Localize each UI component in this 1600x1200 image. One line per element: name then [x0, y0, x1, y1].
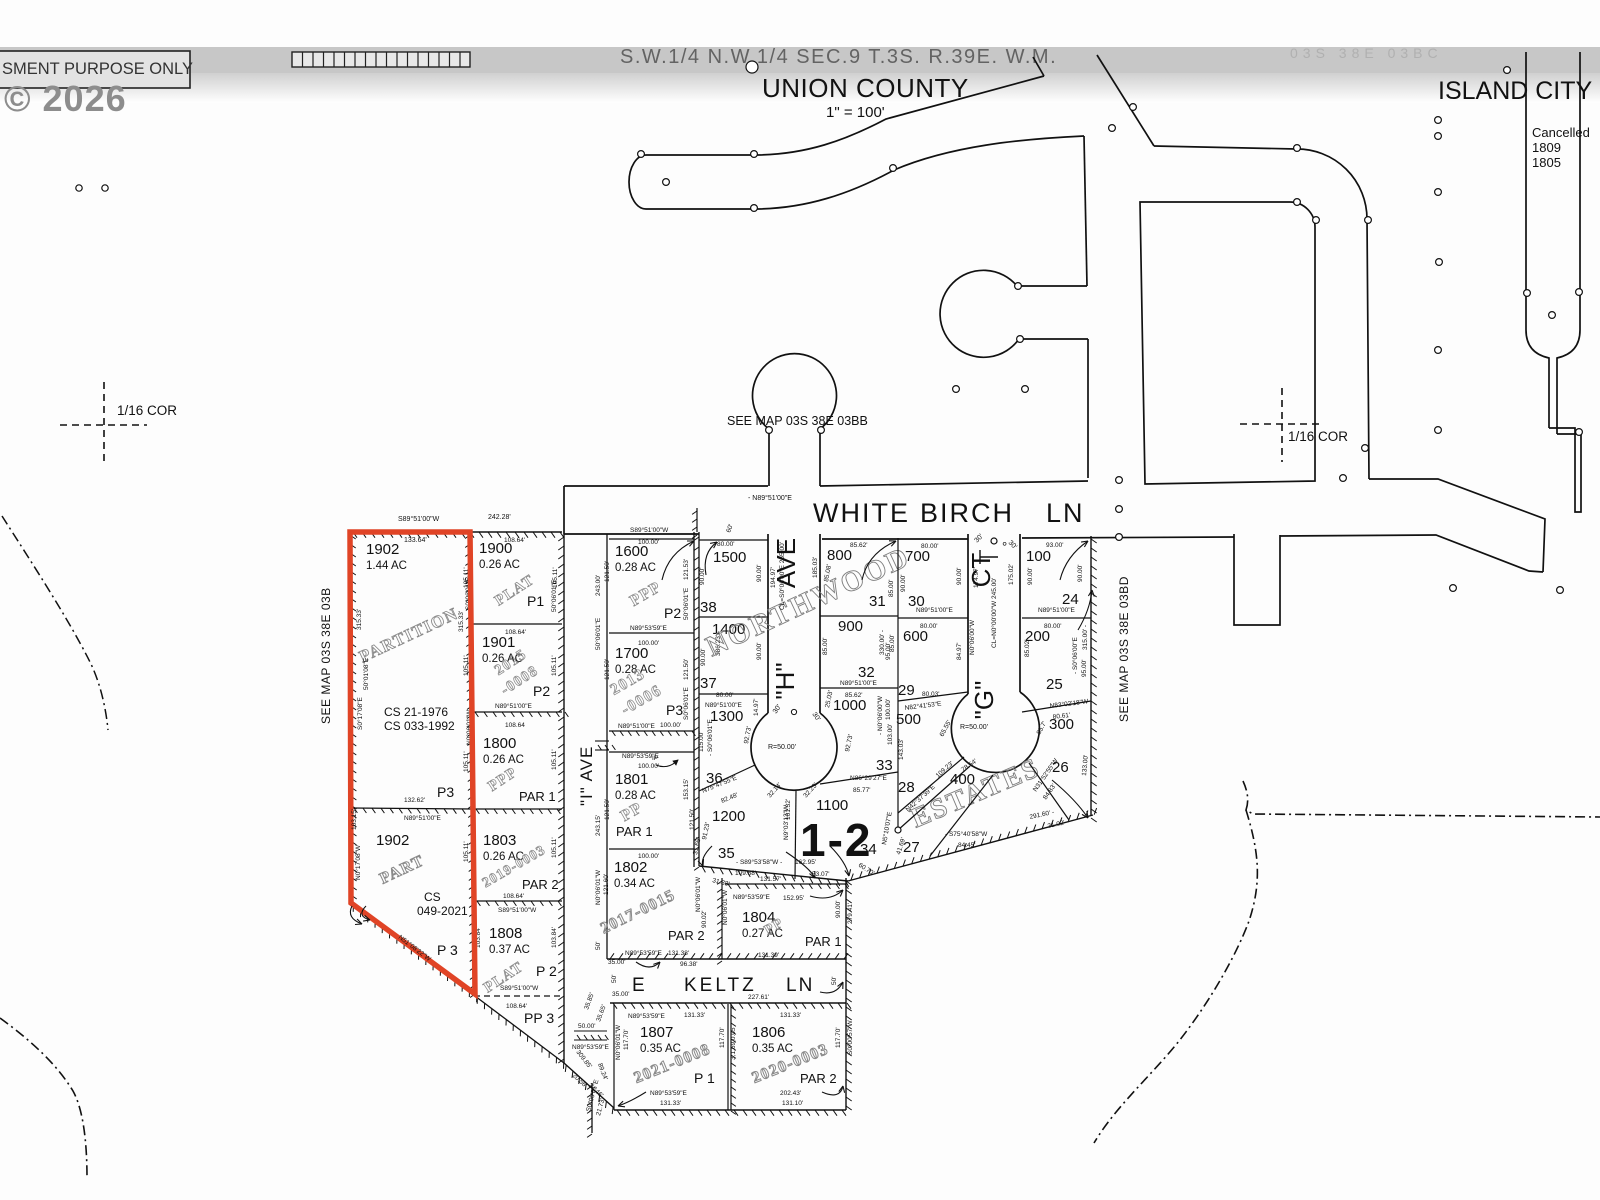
svg-text:34: 34	[860, 841, 877, 858]
svg-text:LN: LN	[786, 975, 814, 996]
svg-text:85.00': 85.00'	[888, 579, 895, 597]
svg-text:- N0°06'00"W: - N0°06'00"W	[876, 695, 884, 735]
svg-text:50': 50'	[611, 975, 618, 983]
svg-text:90.00': 90.00'	[900, 574, 907, 592]
svg-text:175.02': 175.02'	[1008, 564, 1015, 585]
svg-text:90.00': 90.00'	[756, 642, 763, 660]
svg-text:108.64: 108.64	[505, 722, 525, 729]
svg-text:243.00': 243.00'	[595, 575, 602, 596]
svg-text:- N89°51'00"E: - N89°51'00"E	[748, 494, 792, 502]
svg-text:N0°06'00"W: N0°06'00"W	[968, 619, 976, 655]
svg-text:N86°29'27"E: N86°29'27"E	[850, 774, 888, 782]
svg-text:P2: P2	[664, 605, 681, 621]
svg-text:- S0°06'01"E: - S0°06'01"E	[706, 718, 714, 756]
svg-text:CS 21-1976: CS 21-1976	[384, 705, 448, 719]
svg-text:PAR 1: PAR 1	[519, 789, 556, 804]
svg-text:ISLAND CITY: ISLAND CITY	[1438, 77, 1593, 105]
svg-text:35.00': 35.00'	[608, 959, 626, 966]
svg-text:103.00': 103.00'	[887, 724, 894, 745]
svg-text:N0°06'01"W: N0°06'01"W	[721, 889, 729, 925]
svg-text:N89°51'00"E: N89°51'00"E	[916, 606, 954, 614]
svg-text:100.00': 100.00'	[638, 763, 659, 770]
svg-text:P3: P3	[666, 702, 683, 718]
svg-text:CS: CS	[424, 890, 441, 904]
svg-text:33: 33	[876, 757, 893, 774]
svg-text:108.64': 108.64'	[506, 1003, 527, 1010]
svg-text:0.26 AC: 0.26 AC	[483, 754, 524, 766]
svg-text:279.41': 279.41'	[847, 903, 854, 924]
svg-text:27: 27	[903, 839, 920, 856]
svg-text:UNION COUNTY: UNION COUNTY	[762, 73, 969, 103]
svg-text:SEE MAP 03S 38E 03BB: SEE MAP 03S 38E 03BB	[727, 414, 868, 428]
svg-text:121.60': 121.60'	[603, 874, 610, 895]
svg-text:P 2: P 2	[536, 963, 557, 979]
svg-text:N89°53'59"E: N89°53'59"E	[630, 624, 668, 632]
svg-text:1500: 1500	[713, 549, 746, 566]
svg-text:R=50.00': R=50.00'	[960, 724, 988, 731]
svg-text:N89°53'59"E: N89°53'59"E	[650, 1089, 688, 1097]
svg-text:31: 31	[869, 593, 886, 610]
svg-text:1902: 1902	[376, 832, 409, 849]
svg-text:315.33': 315.33'	[458, 611, 465, 632]
svg-text:- S89°53'58"W -: - S89°53'58"W -	[736, 858, 782, 866]
svg-text:84.45': 84.45'	[958, 842, 976, 849]
svg-text:202.43': 202.43'	[780, 1090, 801, 1097]
svg-text:100: 100	[1026, 548, 1051, 565]
svg-text:50°06'01"E: 50°06'01"E	[550, 579, 558, 612]
svg-text:80.00': 80.00'	[717, 541, 735, 548]
svg-text:N89°51'00"E: N89°51'00"E	[840, 679, 878, 687]
svg-text:37: 37	[700, 675, 717, 692]
svg-text:P2: P2	[533, 683, 550, 699]
svg-text:90.00': 90.00'	[700, 648, 707, 666]
svg-text:95.00': 95.00'	[1081, 659, 1088, 677]
svg-text:BIRCH: BIRCH	[920, 498, 1014, 528]
svg-text:143.03': 143.03'	[898, 739, 905, 760]
svg-text:CS 033-1992: CS 033-1992	[384, 719, 455, 733]
svg-text:1/16 COR: 1/16 COR	[1288, 429, 1348, 444]
svg-text:121.50': 121.50'	[604, 799, 611, 820]
svg-text:PP 3: PP 3	[524, 1010, 554, 1026]
svg-text:28: 28	[898, 779, 915, 796]
svg-text:P1: P1	[527, 593, 544, 609]
svg-text:50°01'08"E: 50°01'08"E	[362, 657, 370, 690]
svg-text:"H": "H"	[770, 662, 800, 699]
svg-text:14.97': 14.97'	[753, 698, 760, 716]
svg-text:1200: 1200	[712, 808, 745, 825]
svg-text:121.50': 121.50'	[683, 659, 690, 680]
svg-text:© 2026: © 2026	[4, 78, 127, 119]
svg-text:25: 25	[1046, 676, 1063, 693]
svg-text:243.15': 243.15'	[595, 815, 602, 836]
svg-text:131.10': 131.10'	[782, 1100, 803, 1107]
svg-text:105.11': 105.11'	[463, 751, 470, 772]
svg-text:1809: 1809	[1532, 140, 1561, 155]
svg-text:131.33': 131.33'	[660, 1100, 681, 1107]
svg-text:500: 500	[896, 711, 921, 728]
svg-text:SEE MAP 03S 38E 03B: SEE MAP 03S 38E 03B	[319, 587, 333, 724]
svg-text:85.00': 85.00'	[822, 637, 829, 655]
svg-text:121.50': 121.50'	[604, 659, 611, 680]
svg-text:N89°51'00"E: N89°51'00"E	[1038, 606, 1076, 614]
svg-text:R=50.00': R=50.00'	[768, 744, 796, 751]
svg-text:90.00': 90.00'	[956, 567, 963, 585]
svg-text:50°06'01"E: 50°06'01"E	[682, 587, 690, 620]
svg-text:315.00' -: 315.00' -	[1082, 625, 1089, 650]
svg-text:105.11': 105.11'	[551, 655, 558, 676]
svg-text:105.11': 105.11'	[551, 749, 558, 770]
svg-text:S89°51'00"W: S89°51'00"W	[630, 526, 669, 534]
svg-text:0.37 AC: 0.37 AC	[489, 944, 530, 956]
svg-text:S.W.1/4 N.W.1/4 SEC.9 T.3S. R.: S.W.1/4 N.W.1/4 SEC.9 T.3S. R.39E. W.M.	[620, 46, 1057, 68]
svg-text:- S0°06'00"E: - S0°06'00"E	[1071, 636, 1079, 674]
svg-text:152.95': 152.95'	[783, 895, 804, 902]
svg-text:S89°51'00"W: S89°51'00"W	[498, 906, 537, 914]
svg-text:SEE MAP 03S 38E 03BD: SEE MAP 03S 38E 03BD	[1117, 576, 1131, 722]
svg-text:90.00': 90.00'	[1027, 567, 1034, 585]
svg-text:96.38': 96.38'	[680, 961, 698, 968]
svg-text:50°06'01"E: 50°06'01"E	[594, 617, 602, 650]
svg-text:108.64': 108.64'	[503, 893, 524, 900]
svg-text:"G": "G"	[969, 681, 999, 720]
svg-text:1" = 100': 1" = 100'	[826, 104, 885, 121]
svg-text:PAR 1: PAR 1	[616, 824, 653, 839]
svg-text:N0°06'01"W: N0°06'01"W	[594, 869, 602, 905]
svg-text:N89°51'00"E: N89°51'00"E	[404, 814, 442, 822]
svg-text:03S 38E 03BC: 03S 38E 03BC	[1290, 45, 1443, 61]
svg-text:108.64': 108.64'	[504, 537, 525, 544]
svg-text:1801: 1801	[615, 771, 648, 788]
svg-text:N0°17'08"W: N0°17'08"W	[354, 844, 362, 880]
svg-text:1802: 1802	[614, 859, 647, 876]
svg-text:1807: 1807	[640, 1024, 673, 1041]
svg-text:N89°53'59"E: N89°53'59"E	[628, 1012, 666, 1020]
svg-text:90.00': 90.00'	[756, 564, 763, 582]
svg-text:131.33': 131.33'	[780, 1012, 801, 1019]
svg-text:131.39': 131.39'	[758, 952, 779, 959]
svg-text:121.50': 121.50'	[689, 809, 696, 830]
svg-text:- S75°40'58"W: - S75°40'58"W	[945, 830, 988, 838]
svg-text:121.53': 121.53'	[683, 559, 690, 580]
svg-text:100.00': 100.00'	[885, 699, 892, 720]
svg-text:1.44 AC: 1.44 AC	[366, 560, 407, 572]
svg-text:85.62': 85.62'	[850, 542, 868, 549]
svg-text:1808: 1808	[489, 925, 522, 942]
svg-text:P 1: P 1	[694, 1070, 715, 1086]
svg-text:133.64': 133.64'	[404, 537, 427, 544]
svg-text:KELTZ: KELTZ	[684, 975, 757, 996]
svg-text:132.62': 132.62'	[404, 797, 425, 804]
svg-text:PAR 2: PAR 2	[668, 928, 705, 943]
svg-text:84.97': 84.97'	[956, 642, 963, 660]
svg-text:1300: 1300	[710, 708, 743, 725]
svg-text:1902: 1902	[366, 541, 399, 558]
svg-text:3,1,69,0.05: 3,1,69,0.05	[730, 1027, 737, 1060]
svg-text:1/16 COR: 1/16 COR	[117, 403, 177, 418]
svg-text:1805: 1805	[1532, 155, 1561, 170]
svg-text:300: 300	[1049, 716, 1074, 733]
svg-text:131.33': 131.33'	[684, 1012, 705, 1019]
svg-text:S89°51'00"W: S89°51'00"W	[500, 984, 539, 992]
svg-text:85.77': 85.77'	[853, 787, 871, 794]
svg-text:117.70': 117.70'	[835, 1027, 842, 1048]
svg-text:32: 32	[858, 664, 875, 681]
svg-text:95.00': 95.00'	[885, 642, 892, 660]
svg-text:153.15': 153.15'	[683, 779, 690, 800]
svg-text:S0°06'01"E: S0°06'01"E	[682, 686, 690, 720]
svg-text:50': 50'	[595, 942, 602, 950]
svg-text:800: 800	[827, 547, 852, 564]
svg-text:0.35 AC: 0.35 AC	[752, 1043, 793, 1055]
svg-text:38: 38	[700, 599, 717, 616]
svg-text:90.02': 90.02'	[701, 910, 708, 928]
svg-text:0.28 AC: 0.28 AC	[615, 562, 656, 574]
svg-text:1100: 1100	[816, 797, 848, 814]
svg-text:700: 700	[905, 548, 930, 565]
svg-text:N89°53'59"E: N89°53'59"E	[622, 752, 660, 760]
svg-text:P3: P3	[437, 784, 454, 800]
svg-text:227.61': 227.61'	[748, 994, 769, 1001]
svg-text:N9°03'13"W: N9°03'13"W	[782, 804, 790, 840]
svg-text:117.70': 117.70'	[623, 1029, 630, 1050]
svg-text:103.15': 103.15'	[351, 809, 358, 830]
svg-text:105.11': 105.11'	[551, 837, 558, 858]
svg-text:600: 600	[903, 628, 928, 645]
svg-text:PAR 1: PAR 1	[805, 934, 842, 949]
svg-text:1803: 1803	[483, 832, 516, 849]
svg-text:N0°06'01"W: N0°06'01"W	[614, 1024, 622, 1060]
svg-text:0.34 AC: 0.34 AC	[614, 878, 655, 890]
svg-text:121.50': 121.50'	[604, 561, 611, 582]
svg-text:103.84': 103.84'	[551, 927, 558, 948]
svg-text:90.00': 90.00'	[835, 900, 842, 918]
svg-text:PAR 2: PAR 2	[522, 877, 559, 892]
svg-text:N89°51'00"E: N89°51'00"E	[495, 702, 533, 710]
svg-text:50.00': 50.00'	[578, 1023, 596, 1030]
svg-text:242.28': 242.28'	[488, 514, 511, 521]
svg-text:108.64': 108.64'	[505, 629, 526, 636]
svg-text:131.57': 131.57'	[760, 876, 781, 883]
svg-text:24: 24	[1062, 591, 1079, 608]
svg-text:S0°17'08"E: S0°17'08"E	[356, 696, 364, 730]
svg-text:1800: 1800	[483, 735, 516, 752]
svg-text:WHITE: WHITE	[813, 498, 910, 528]
svg-text:049-2021: 049-2021	[417, 904, 468, 918]
svg-text:E: E	[632, 975, 646, 996]
svg-text:N89°51'00"E: N89°51'00"E	[618, 722, 656, 730]
svg-text:CL=N0°00'00"W 245.00': CL=N0°00'00"W 245.00'	[990, 578, 998, 648]
svg-text:N89°53'59"E: N89°53'59"E	[733, 893, 771, 901]
svg-text:AVE: AVE	[771, 538, 801, 588]
svg-text:0.26 AC: 0.26 AC	[479, 559, 520, 571]
svg-text:80.03': 80.03'	[922, 691, 940, 698]
svg-text:1901: 1901	[482, 634, 515, 651]
svg-text:1700: 1700	[615, 645, 648, 662]
svg-text:S89°51'00"W: S89°51'00"W	[398, 515, 440, 523]
svg-text:50': 50'	[831, 977, 838, 985]
svg-text:N0°06'01"W: N0°06'01"W	[694, 876, 702, 912]
svg-text:80.00': 80.00'	[716, 692, 734, 699]
svg-text:100.00': 100.00'	[660, 722, 681, 729]
svg-text:"I" AVE: "I" AVE	[577, 746, 596, 806]
svg-text:117.70': 117.70'	[719, 1027, 726, 1048]
svg-text:900: 900	[838, 618, 863, 635]
svg-text:CL=S0°06'00"E 265.00': CL=S0°06'00"E 265.00'	[778, 542, 786, 610]
svg-text:400: 400	[950, 771, 975, 788]
svg-text:Cancelled: Cancelled	[1532, 125, 1590, 140]
svg-text:90.00': 90.00'	[1077, 564, 1084, 582]
svg-text:1600: 1600	[615, 543, 648, 560]
svg-text:109.88': 109.88'	[735, 870, 756, 877]
svg-text:85.02': 85.02'	[1024, 639, 1031, 657]
svg-text:35.00': 35.00'	[612, 991, 630, 998]
svg-text:SMENT PURPOSE ONLY: SMENT PURPOSE ONLY	[2, 60, 193, 78]
svg-text:1806: 1806	[752, 1024, 785, 1041]
svg-text:S0°00'57"W: S0°00'57"W	[846, 1019, 854, 1055]
svg-text:°: °	[1002, 539, 1007, 554]
svg-text:P 3: P 3	[437, 942, 458, 958]
svg-text:35: 35	[718, 845, 735, 862]
svg-text:185.03': 185.03'	[812, 557, 819, 578]
svg-text:115.00': 115.00'	[698, 731, 705, 752]
svg-text:N89°53'59"E: N89°53'59"E	[572, 1043, 610, 1051]
svg-text:29: 29	[898, 682, 915, 699]
svg-text:LN: LN	[1046, 498, 1085, 528]
svg-text:PAR 2: PAR 2	[800, 1071, 837, 1086]
svg-text:315.33': 315.33'	[356, 609, 363, 630]
svg-text:1000: 1000	[833, 697, 866, 714]
